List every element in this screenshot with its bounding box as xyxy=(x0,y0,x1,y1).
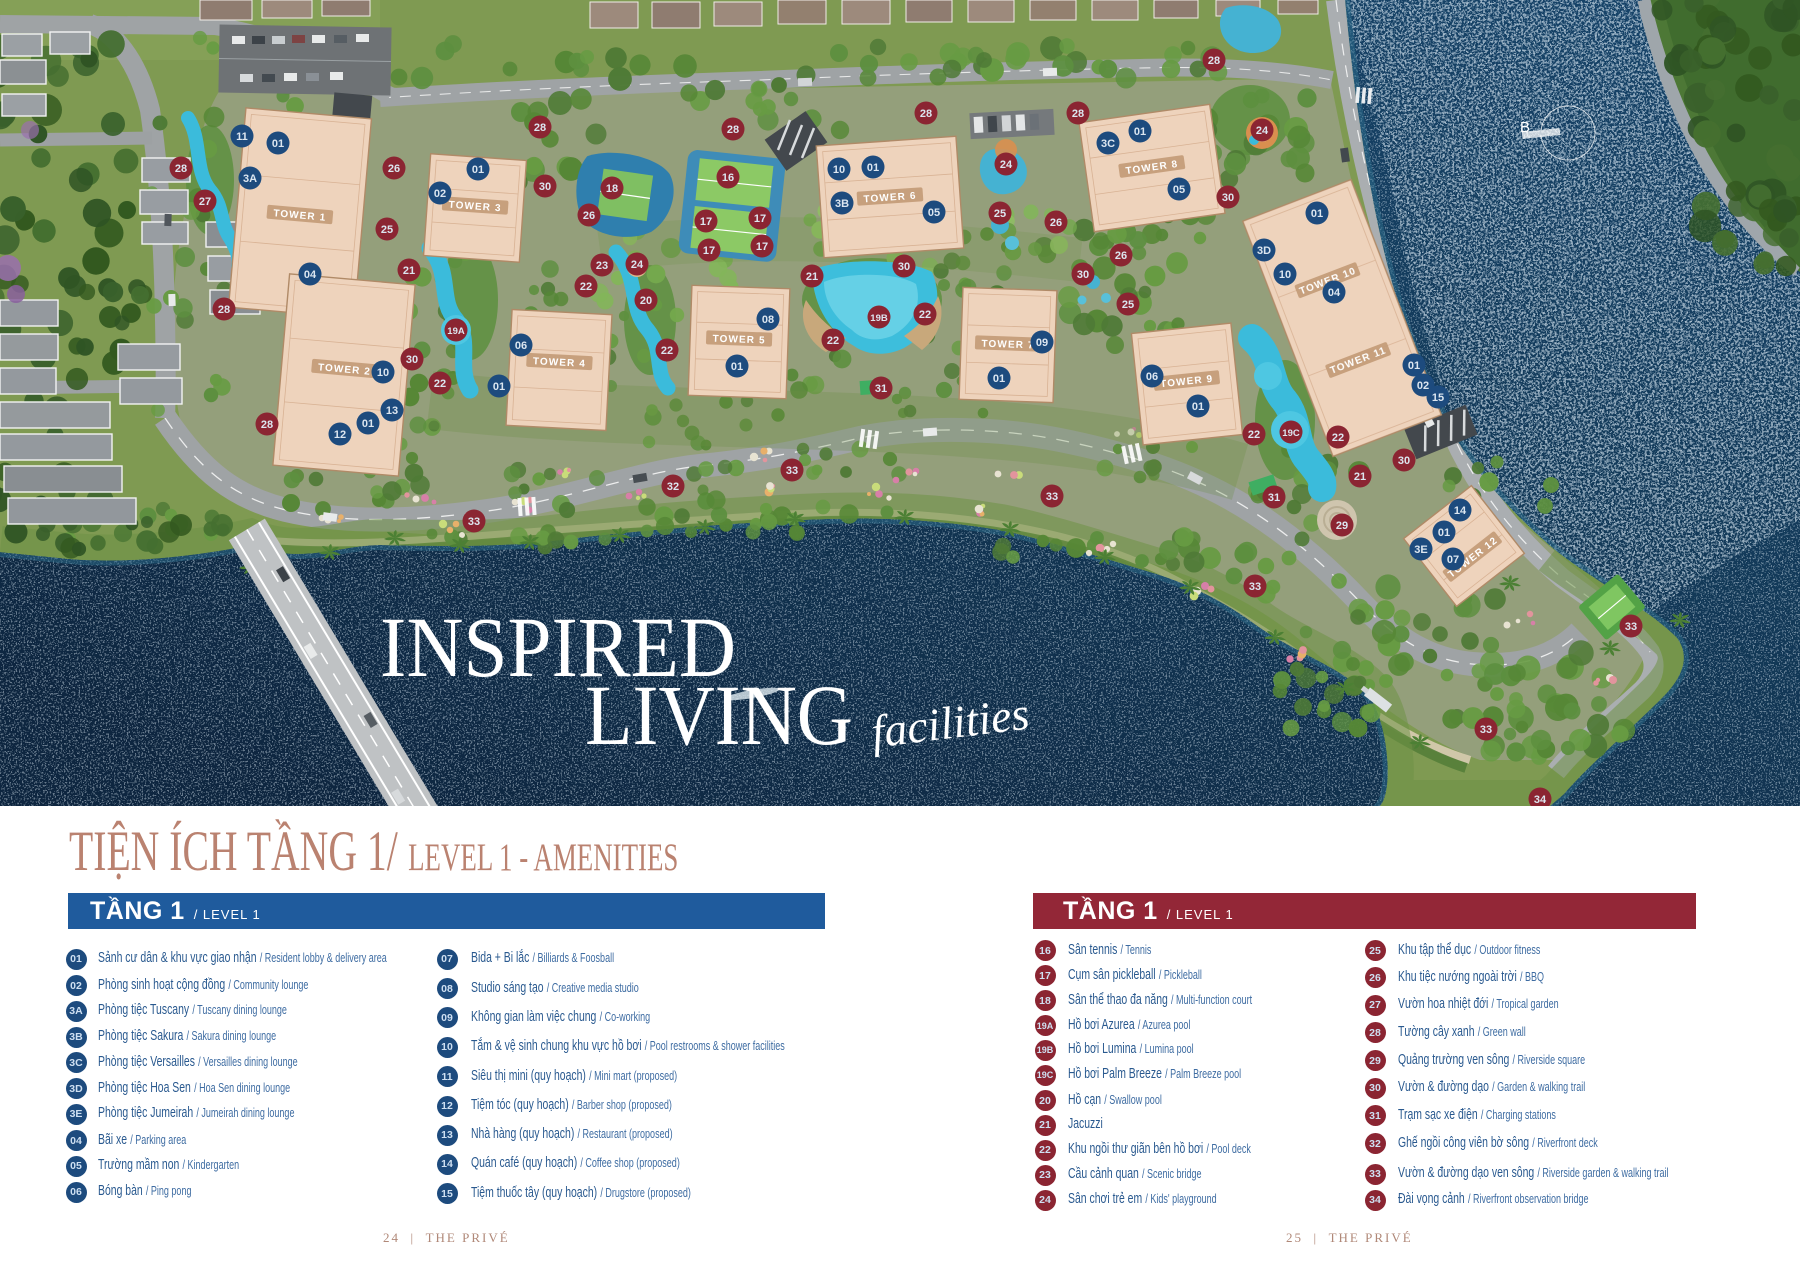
svg-text:02: 02 xyxy=(434,188,446,200)
svg-text:06: 06 xyxy=(1146,371,1158,383)
svg-text:21: 21 xyxy=(806,271,818,283)
svg-text:24: 24 xyxy=(1256,125,1269,137)
svg-text:22: 22 xyxy=(580,281,592,293)
svg-text:26: 26 xyxy=(1115,250,1127,262)
svg-text:10: 10 xyxy=(377,367,389,379)
svg-text:3A: 3A xyxy=(243,173,257,185)
svg-text:22: 22 xyxy=(827,335,839,347)
svg-text:30: 30 xyxy=(898,261,910,273)
svg-text:05: 05 xyxy=(928,207,940,219)
svg-text:29: 29 xyxy=(1336,520,1348,532)
svg-text:TOWER 5: TOWER 5 xyxy=(712,334,765,347)
svg-text:28: 28 xyxy=(1208,55,1220,67)
svg-text:16: 16 xyxy=(722,172,734,184)
svg-text:30: 30 xyxy=(539,181,551,193)
svg-text:08: 08 xyxy=(762,314,774,326)
svg-text:02: 02 xyxy=(1417,380,1429,392)
svg-text:04: 04 xyxy=(1328,287,1341,299)
svg-text:01: 01 xyxy=(1192,401,1204,413)
svg-text:3D: 3D xyxy=(1257,245,1271,257)
svg-text:30: 30 xyxy=(1077,269,1089,281)
svg-text:12: 12 xyxy=(334,429,346,441)
svg-text:10: 10 xyxy=(1279,269,1291,281)
svg-text:01: 01 xyxy=(867,162,879,174)
svg-text:TOWER 7: TOWER 7 xyxy=(981,339,1034,352)
svg-text:28: 28 xyxy=(218,304,230,316)
svg-text:22: 22 xyxy=(919,309,931,321)
svg-text:27: 27 xyxy=(199,196,211,208)
svg-text:10: 10 xyxy=(833,164,845,176)
svg-text:28: 28 xyxy=(261,419,273,431)
svg-text:33: 33 xyxy=(786,465,798,477)
svg-text:33: 33 xyxy=(1046,491,1058,503)
svg-text:22: 22 xyxy=(1248,429,1260,441)
svg-text:3B: 3B xyxy=(835,198,849,210)
svg-text:28: 28 xyxy=(175,163,187,175)
svg-text:17: 17 xyxy=(754,213,766,225)
svg-text:11: 11 xyxy=(236,131,248,143)
svg-text:26: 26 xyxy=(583,210,595,222)
svg-text:33: 33 xyxy=(1625,621,1637,633)
svg-text:19C: 19C xyxy=(1282,428,1300,439)
svg-text:B: B xyxy=(1520,119,1530,136)
svg-text:01: 01 xyxy=(1311,208,1323,220)
svg-text:32: 32 xyxy=(667,481,679,493)
svg-text:06: 06 xyxy=(515,340,527,352)
svg-text:22: 22 xyxy=(1332,432,1344,444)
svg-text:01: 01 xyxy=(472,164,484,176)
svg-text:07: 07 xyxy=(1447,554,1459,566)
svg-text:25: 25 xyxy=(1122,299,1134,311)
svg-text:31: 31 xyxy=(875,383,887,395)
svg-text:28: 28 xyxy=(534,122,546,134)
svg-text:17: 17 xyxy=(700,216,712,228)
svg-text:30: 30 xyxy=(1398,455,1410,467)
svg-text:34: 34 xyxy=(1534,794,1547,806)
svg-text:23: 23 xyxy=(596,260,608,272)
svg-text:33: 33 xyxy=(1249,581,1261,593)
svg-text:26: 26 xyxy=(388,163,400,175)
svg-text:28: 28 xyxy=(920,108,932,120)
svg-text:19B: 19B xyxy=(870,313,888,324)
svg-text:01: 01 xyxy=(731,361,743,373)
svg-text:01: 01 xyxy=(362,418,374,430)
svg-text:28: 28 xyxy=(727,124,739,136)
svg-text:28: 28 xyxy=(1072,108,1084,120)
svg-text:33: 33 xyxy=(1480,724,1492,736)
svg-text:04: 04 xyxy=(304,269,317,281)
svg-text:13: 13 xyxy=(386,405,398,417)
svg-text:LIVING: LIVING xyxy=(585,667,853,763)
svg-text:01: 01 xyxy=(1134,126,1146,138)
svg-text:30: 30 xyxy=(406,354,418,366)
svg-text:26: 26 xyxy=(1050,217,1062,229)
svg-text:30: 30 xyxy=(1222,192,1234,204)
svg-text:15: 15 xyxy=(1432,392,1444,404)
svg-text:01: 01 xyxy=(993,373,1005,385)
svg-text:22: 22 xyxy=(434,378,446,390)
svg-text:17: 17 xyxy=(703,245,715,257)
svg-text:22: 22 xyxy=(661,345,673,357)
svg-text:01: 01 xyxy=(1408,360,1420,372)
svg-text:31: 31 xyxy=(1268,492,1280,504)
svg-text:25: 25 xyxy=(994,208,1006,220)
svg-text:24: 24 xyxy=(631,259,644,271)
svg-text:18: 18 xyxy=(606,183,618,195)
svg-text:25: 25 xyxy=(381,224,393,236)
svg-text:01: 01 xyxy=(272,138,284,150)
svg-text:19A: 19A xyxy=(447,326,465,337)
svg-text:33: 33 xyxy=(468,516,480,528)
svg-text:3E: 3E xyxy=(1414,544,1427,556)
svg-text:14: 14 xyxy=(1454,505,1467,517)
svg-text:21: 21 xyxy=(403,265,415,277)
svg-text:20: 20 xyxy=(640,295,652,307)
svg-text:17: 17 xyxy=(756,241,768,253)
svg-text:01: 01 xyxy=(493,381,505,393)
svg-text:01: 01 xyxy=(1438,527,1450,539)
svg-text:05: 05 xyxy=(1173,184,1185,196)
svg-text:24: 24 xyxy=(1000,159,1013,171)
svg-text:3C: 3C xyxy=(1101,138,1115,150)
svg-text:21: 21 xyxy=(1354,471,1366,483)
svg-text:09: 09 xyxy=(1036,337,1048,349)
